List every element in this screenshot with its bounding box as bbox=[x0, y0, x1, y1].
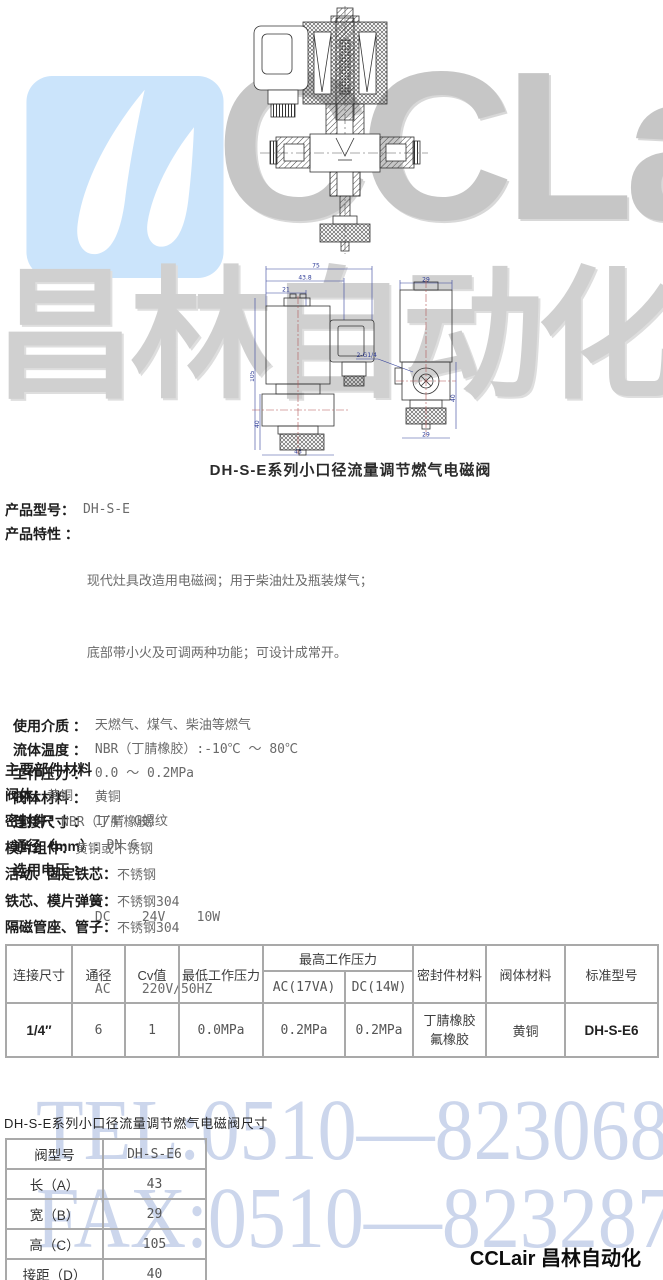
table-row: 高（C） 105 bbox=[6, 1229, 206, 1259]
col-header: 标准型号 bbox=[565, 945, 658, 1003]
col-header-max-pressure: 最高工作压力 bbox=[263, 945, 413, 971]
valve-cross-section-drawing bbox=[248, 6, 433, 256]
col-header: 密封件材料 bbox=[413, 945, 486, 1003]
cclair-swoosh-logo-icon bbox=[25, 76, 225, 278]
cell-dn: 6 bbox=[72, 1003, 125, 1057]
spec-row-features: 产品特性 ： 现代灶具改造用电磁阀；用于柴油灶及瓶装煤气； 底部带小火及可调两种… bbox=[5, 522, 655, 714]
cell-max-dc: 0.2MPa bbox=[345, 1003, 413, 1057]
material-item: 模片组件：黄铜或不锈钢 bbox=[5, 836, 655, 862]
col-header: 通径 bbox=[72, 945, 125, 1003]
col-header: 连接尺寸 bbox=[6, 945, 72, 1003]
dim-label: 40 bbox=[450, 394, 457, 402]
dim-label: 43.8 bbox=[298, 275, 312, 282]
col-header: 最低工作压力 bbox=[179, 945, 263, 1003]
col-header: Cv值 bbox=[125, 945, 179, 1003]
dim-label-port: 2-G1/4 bbox=[356, 352, 377, 359]
dim-label: 21 bbox=[282, 287, 290, 294]
spec-value: NBR（丁腈橡胶）:-10℃ ～ 80℃ bbox=[95, 738, 298, 762]
spec-label: 使用介质 ： bbox=[13, 714, 87, 738]
cell-cv: 1 bbox=[125, 1003, 179, 1057]
col-header: 阀体材料 bbox=[486, 945, 565, 1003]
spec-label: 流体温度 ： bbox=[13, 738, 87, 762]
material-item: 阀体：黄铜 bbox=[5, 783, 655, 809]
col-subheader-dc: DC(14W) bbox=[345, 971, 413, 1003]
spec-row-media: 使用介质 ： 天燃气、煤气、柴油等燃气 bbox=[5, 714, 655, 738]
table-row: 阀型号 DH-S-E6 bbox=[6, 1139, 206, 1169]
materials-section: 主要部件材料 阀体：黄铜 密封件：NBR（丁腈橡胶） 模片组件：黄铜或不锈钢 活… bbox=[5, 760, 655, 941]
dim-label: 75 bbox=[312, 263, 320, 270]
material-item: 活动、固定铁芯：不锈钢 bbox=[5, 862, 655, 888]
spec-label: 产品特性 ： bbox=[5, 522, 79, 714]
cell-model: DH-S-E6 bbox=[565, 1003, 658, 1057]
spec-table: 连接尺寸 通径 Cv值 最低工作压力 最高工作压力 密封件材料 阀体材料 标准型… bbox=[5, 944, 659, 1058]
spec-row-model: 产品型号： DH-S-E bbox=[5, 498, 655, 522]
dimensions-table: 阀型号 DH-S-E6 长（A） 43 宽（B） 29 高（C） 105 接距（… bbox=[5, 1138, 207, 1280]
col-subheader-ac: AC(17VA) bbox=[263, 971, 345, 1003]
dim-label: 105 bbox=[250, 370, 256, 382]
drawing-caption: DH-S-E系列小口径流量调节燃气电磁阀 bbox=[0, 459, 663, 480]
cell-body-material: 黄铜 bbox=[486, 1003, 565, 1057]
cell-min-pressure: 0.0MPa bbox=[179, 1003, 263, 1057]
material-item: 隔磁管座、管子：不锈钢304 bbox=[5, 915, 655, 941]
valve-dimension-views-drawing: 75 43.8 21 105 40 43 bbox=[250, 262, 460, 458]
spec-row-fluid-temp: 流体温度 ： NBR（丁腈橡胶）:-10℃ ～ 80℃ bbox=[5, 738, 655, 762]
spec-value: 现代灶具改造用电磁阀；用于柴油灶及瓶装煤气； bbox=[87, 570, 373, 594]
cell-connection: 1/4″ bbox=[6, 1003, 72, 1057]
spec-value: DH-S-E bbox=[83, 498, 130, 522]
spec-value: 底部带小火及可调两种功能；可设计成常开。 bbox=[87, 642, 373, 666]
dimensions-caption: DH-S-E系列小口径流量调节燃气电磁阀尺寸 bbox=[4, 1113, 268, 1132]
dim-label: 40 bbox=[254, 420, 261, 428]
materials-heading: 主要部件材料 bbox=[5, 760, 655, 783]
spec-label: 产品型号： bbox=[5, 498, 75, 522]
table-row: 宽（B） 29 bbox=[6, 1199, 206, 1229]
product-datasheet-page: CCLair 昌林自动化 TEL:0510—82306871 FAX:0510—… bbox=[0, 0, 663, 1280]
material-item: 铁芯、模片弹簧：不锈钢304 bbox=[5, 889, 655, 915]
material-item: 密封件：NBR（丁腈橡胶） bbox=[5, 809, 655, 835]
table-row: 1/4″ 6 1 0.0MPa 0.2MPa 0.2MPa 丁腈橡胶 氟橡胶 黄… bbox=[6, 1003, 658, 1057]
cell-seal-material: 丁腈橡胶 氟橡胶 bbox=[413, 1003, 486, 1057]
cell-max-ac: 0.2MPa bbox=[263, 1003, 345, 1057]
table-row: 接距（D） 40 bbox=[6, 1259, 206, 1280]
table-row: 长（A） 43 bbox=[6, 1169, 206, 1199]
spec-value: 天燃气、煤气、柴油等燃气 bbox=[95, 714, 251, 738]
footer-brand: CCLair 昌林自动化 bbox=[470, 1242, 641, 1271]
